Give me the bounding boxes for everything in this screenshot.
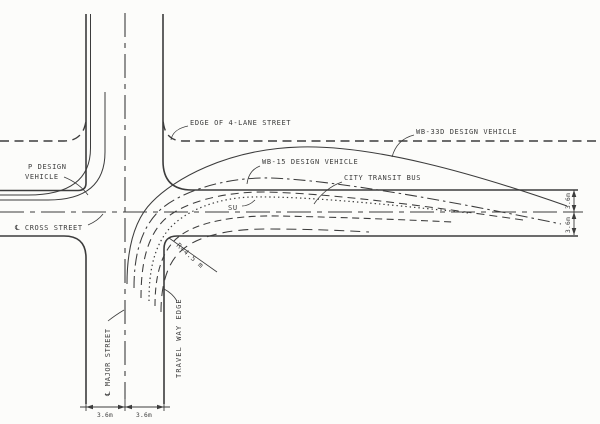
leader-major-street (108, 310, 124, 321)
dim-major-left-lane: 3.6m (97, 412, 113, 419)
four-lane-edge-west (0, 121, 86, 141)
dim-cross-upper-lane: 3.6m (565, 193, 572, 209)
dim-major-right-lane: 3.6m (136, 412, 152, 419)
labels: EDGE OF 4-LANE STREET WB-33D DESIGN VEHI… (15, 119, 572, 419)
cross-south-edge-east (164, 236, 578, 404)
leader-city-transit-bus (314, 182, 342, 204)
label-city-transit-bus: CITY TRANSIT BUS (344, 174, 421, 182)
p-vehicle-path-inner (0, 92, 105, 200)
label-wb15: WB-15 DESIGN VEHICLE (262, 158, 358, 166)
leader-cross-street (88, 214, 103, 225)
label-su: SU (228, 204, 238, 212)
label-corner-radius: R=4.5 m (175, 242, 205, 270)
major-east-edge-north (163, 14, 578, 190)
label-p-design-line2: VEHICLE (25, 173, 59, 181)
label-major-street: ℄ MAJOR STREET (104, 328, 112, 396)
city-transit-bus-path (141, 192, 523, 298)
leader-edge-4lane (171, 126, 188, 140)
label-p-design-line1: P DESIGN (28, 163, 67, 171)
cross-south-edge-west (0, 236, 86, 404)
right-dimension-arrows (572, 190, 577, 235)
label-wb33d: WB-33D DESIGN VEHICLE (416, 128, 517, 136)
label-travel-way-edge: TRAVEL WAY EDGE (175, 298, 183, 378)
label-edge-of-4-lane-street: EDGE OF 4-LANE STREET (190, 119, 291, 127)
leader-su (242, 200, 255, 206)
dim-cross-lower-lane: 3.6m (565, 217, 572, 233)
turning-paths-figure: EDGE OF 4-LANE STREET WB-33D DESIGN VEHI… (0, 0, 600, 424)
diagram-canvas: EDGE OF 4-LANE STREET WB-33D DESIGN VEHI… (0, 0, 600, 424)
label-cross-street: ℄ CROSS STREET (15, 224, 83, 232)
inner-track-b (161, 229, 369, 312)
street-edges (0, 13, 596, 404)
bottom-dimension-lines (80, 397, 170, 411)
wb15-path (134, 178, 561, 288)
leader-wb33d (392, 135, 414, 157)
leader-wb15 (247, 166, 260, 184)
